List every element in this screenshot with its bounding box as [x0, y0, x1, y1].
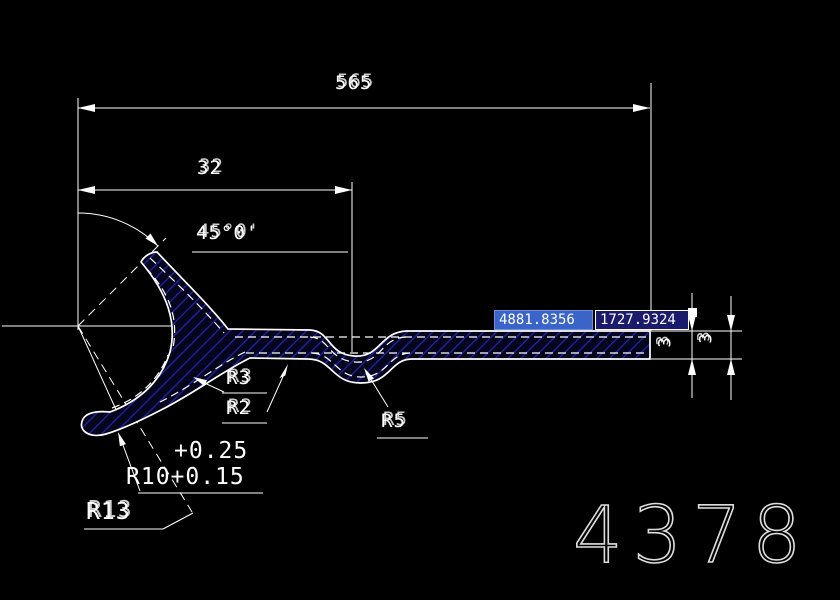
drawing-number: 4378 [573, 491, 812, 581]
radius-tolerance-label: R10+0.15 [126, 466, 245, 489]
input-cursor-icon [688, 308, 697, 317]
dim-left-width-label: 32 [197, 159, 222, 178]
leader-lines [84, 370, 428, 529]
profile-outline [81, 252, 650, 435]
cad-viewport[interactable]: 4378 565 32 45°0' R3 R2 R5 +0.25 R10+0.1… [0, 0, 840, 600]
fillet-r3-label: R3 [226, 369, 251, 388]
dim-thickness-inner-label: 3 [658, 337, 675, 347]
dynamic-input-x-field[interactable]: 4881.8356 [494, 310, 593, 330]
tolerance-upper-label: +0.25 [174, 440, 248, 463]
fillet-r2-label: R2 [226, 399, 251, 418]
radius-left-label: R13 [86, 501, 131, 524]
dynamic-input-y-field[interactable]: 1727.9324 [595, 310, 689, 330]
dim-thickness-outer-label: 3 [699, 333, 716, 343]
dim-angle-label: 45°0' [196, 224, 258, 243]
fillet-r5-label: R5 [381, 412, 406, 431]
dim-total-width-label: 565 [335, 74, 372, 93]
